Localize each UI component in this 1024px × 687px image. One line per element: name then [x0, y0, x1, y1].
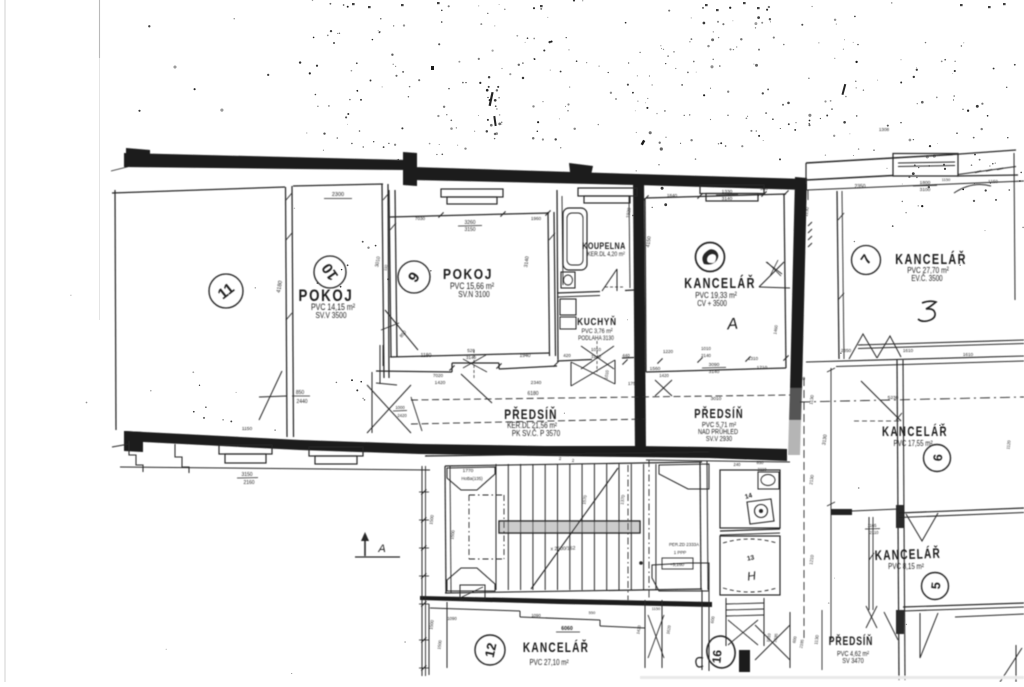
- svg-text:PER.ZD 2333A: PER.ZD 2333A: [669, 542, 699, 547]
- svg-text:SV.V 2930: SV.V 2930: [706, 435, 733, 443]
- svg-text:1710: 1710: [757, 365, 768, 371]
- svg-text:1960: 1960: [531, 216, 542, 221]
- svg-text:3140: 3140: [591, 354, 602, 359]
- svg-text:240: 240: [734, 462, 742, 467]
- svg-text:1180: 1180: [421, 353, 432, 359]
- svg-text:2300: 2300: [332, 192, 344, 198]
- svg-text:2340: 2340: [531, 380, 542, 386]
- svg-text:2110: 2110: [869, 530, 879, 535]
- svg-text:1420: 1420: [435, 380, 446, 386]
- svg-text:1 PPP: 1 PPP: [674, 550, 687, 555]
- svg-text:KANCELÁŘ: KANCELÁŘ: [882, 425, 948, 440]
- svg-text:1610: 1610: [963, 352, 974, 357]
- svg-text:6060: 6060: [561, 626, 573, 632]
- svg-text:3140: 3140: [722, 196, 733, 202]
- svg-text:6180: 6180: [527, 391, 538, 397]
- svg-text:KER.DL 4,20 m²: KER.DL 4,20 m²: [587, 252, 625, 259]
- svg-text:1150: 1150: [652, 606, 661, 611]
- svg-text:CV + 3500: CV + 3500: [697, 299, 727, 308]
- svg-text:2440: 2440: [296, 399, 307, 405]
- svg-text:7020: 7020: [433, 373, 444, 378]
- svg-text:1754: 1754: [628, 381, 639, 386]
- svg-text:A: A: [377, 543, 385, 555]
- svg-text:POKOJ: POKOJ: [443, 266, 493, 283]
- svg-text:3090: 3090: [709, 362, 720, 368]
- svg-text:3150: 3150: [241, 472, 252, 478]
- svg-text:1090: 1090: [447, 616, 457, 621]
- svg-text:1420: 1420: [659, 373, 669, 378]
- svg-text:PVC 3,76 m²: PVC 3,76 m²: [581, 327, 612, 335]
- svg-text:6: 6: [931, 454, 946, 462]
- svg-text:1010: 1010: [701, 346, 711, 351]
- svg-text:2350: 2350: [854, 184, 865, 190]
- svg-text:KOUPELNA: KOUPELNA: [582, 241, 625, 251]
- svg-text:+5,160: +5,160: [670, 562, 685, 567]
- svg-text:300: 300: [760, 186, 768, 191]
- svg-text:1940: 1940: [519, 353, 530, 359]
- svg-text:3140: 3140: [709, 369, 720, 375]
- svg-text:HoBa(135): HoBa(135): [461, 476, 483, 481]
- svg-text:2350: 2350: [841, 348, 852, 353]
- svg-text:2420: 2420: [397, 413, 407, 418]
- svg-text:1150: 1150: [988, 179, 998, 184]
- svg-text:850: 850: [757, 460, 765, 465]
- svg-text:1150: 1150: [942, 177, 951, 182]
- svg-text:PODLAHA 3130: PODLAHA 3130: [578, 336, 614, 343]
- svg-text:PŘEDSÍŇ: PŘEDSÍŇ: [694, 407, 743, 422]
- svg-text:PK SV.Č. P 3570: PK SV.Č. P 3570: [512, 428, 560, 438]
- svg-text:1560: 1560: [650, 366, 661, 372]
- svg-text:SV.N 3100: SV.N 3100: [458, 289, 489, 299]
- svg-text:440: 440: [622, 353, 630, 358]
- svg-text:3010: 3010: [711, 396, 722, 402]
- svg-text:1090: 1090: [531, 613, 541, 618]
- svg-text:1010: 1010: [591, 347, 602, 352]
- svg-text:2160: 2160: [243, 480, 254, 486]
- svg-text:3150: 3150: [464, 227, 475, 233]
- svg-text:3260: 3260: [464, 220, 475, 226]
- svg-text:PVC 8,15 m²: PVC 8,15 m²: [888, 562, 924, 571]
- svg-text:5: 5: [929, 582, 944, 590]
- svg-text:KANCELÁŘ: KANCELÁŘ: [684, 274, 755, 291]
- svg-text:1770: 1770: [463, 468, 474, 474]
- svg-text:3100: 3100: [920, 187, 931, 193]
- svg-text:1000: 1000: [395, 405, 405, 410]
- svg-text:1330: 1330: [722, 189, 733, 195]
- svg-text:KANCELÁŘ: KANCELÁŘ: [523, 638, 589, 655]
- svg-text:420: 420: [563, 353, 571, 358]
- svg-text:SV.V 3500: SV.V 3500: [315, 310, 346, 320]
- svg-text:PVC 27,10 m²: PVC 27,10 m²: [529, 658, 569, 667]
- svg-text:A: A: [726, 316, 739, 334]
- svg-text:550: 550: [589, 610, 596, 615]
- svg-text:SV 3470: SV 3470: [842, 657, 864, 665]
- svg-text:5230: 5230: [888, 395, 899, 401]
- svg-text:PVC 17,55 m²: PVC 17,55 m²: [893, 439, 933, 448]
- svg-text:PŘEDSÍŇ: PŘEDSÍŇ: [829, 634, 874, 649]
- svg-text:12: 12: [482, 641, 500, 658]
- svg-text:1610: 1610: [903, 348, 914, 353]
- svg-text:KANCELÁŘ: KANCELÁŘ: [874, 544, 941, 564]
- svg-text:7030: 7030: [415, 216, 426, 221]
- svg-text:2140: 2140: [701, 353, 711, 358]
- svg-text:3140: 3140: [466, 355, 477, 360]
- svg-text:2110: 2110: [757, 467, 767, 472]
- svg-text:1220: 1220: [663, 349, 674, 354]
- svg-text:1840: 1840: [667, 193, 678, 198]
- svg-text:1150: 1150: [242, 426, 253, 432]
- svg-text:16: 16: [709, 649, 724, 664]
- svg-text:850: 850: [296, 390, 305, 396]
- svg-text:KUCHYŇ: KUCHYŇ: [577, 315, 617, 327]
- svg-text:EV.Č. 3500: EV.Č. 3500: [911, 273, 942, 283]
- svg-text:x 2500/162: x 2500/162: [550, 546, 575, 553]
- svg-text:1308: 1308: [879, 127, 890, 132]
